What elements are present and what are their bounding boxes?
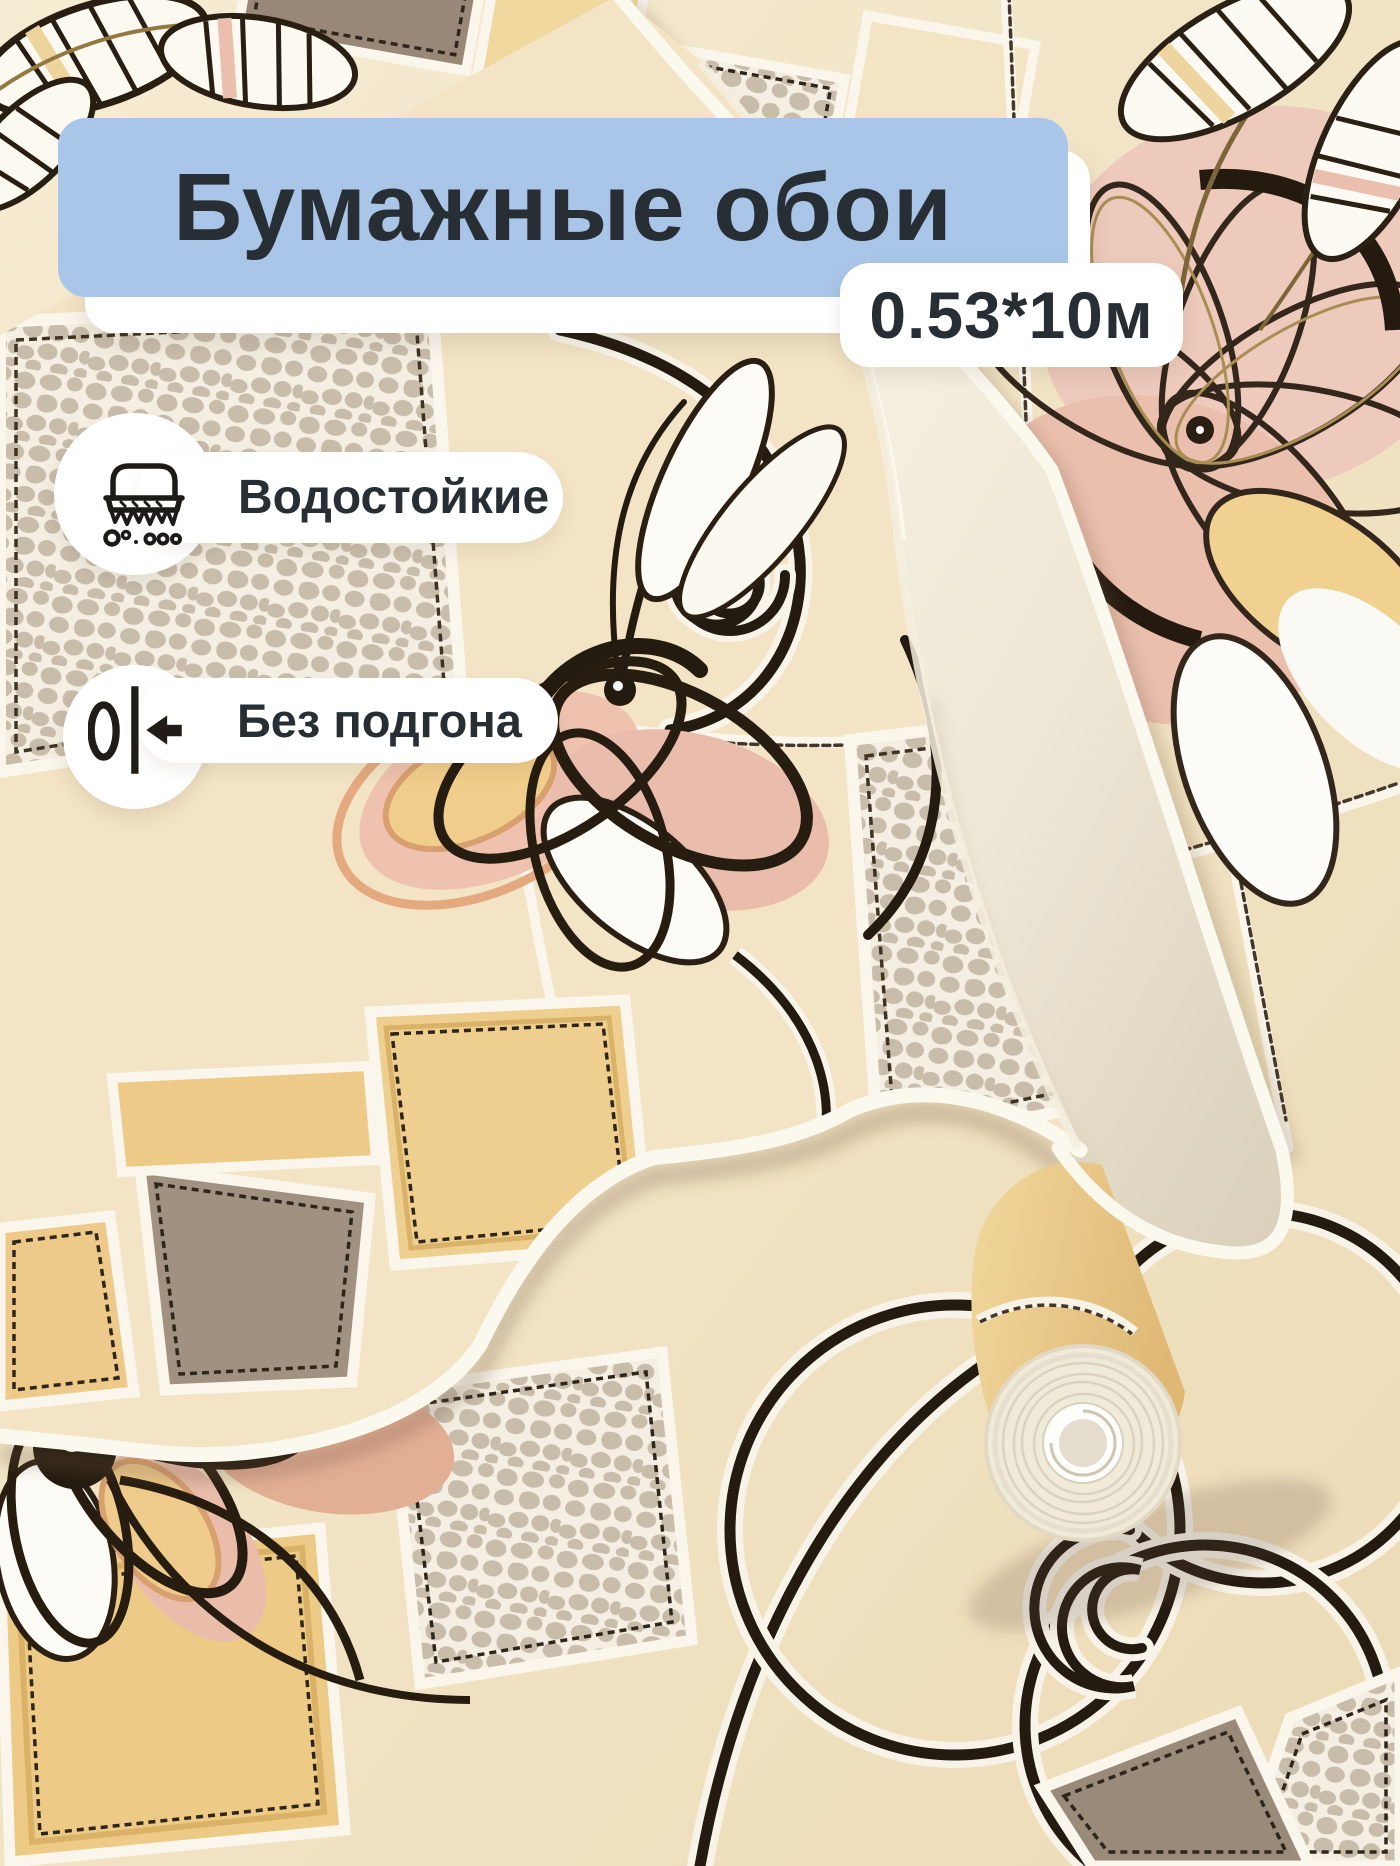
- no-pattern-repeat-icon: [88, 684, 188, 776]
- feature-label-waterproof: Водостойкие: [238, 470, 549, 525]
- scrub-brush-icon: [98, 458, 190, 558]
- product-image: Бумажные обои 0.53*10м Водостойкие Без п…: [0, 0, 1400, 1866]
- feature-label-no-repeat: Без подгона: [237, 693, 522, 748]
- feature-pill-waterproof: Водостойкие: [136, 452, 563, 543]
- size-badge: 0.53*10м: [840, 263, 1183, 367]
- product-title: Бумажные обои: [173, 153, 953, 263]
- size-badge-text: 0.53*10м: [869, 277, 1153, 353]
- feature-pill-no-repeat: Без подгона: [137, 678, 558, 763]
